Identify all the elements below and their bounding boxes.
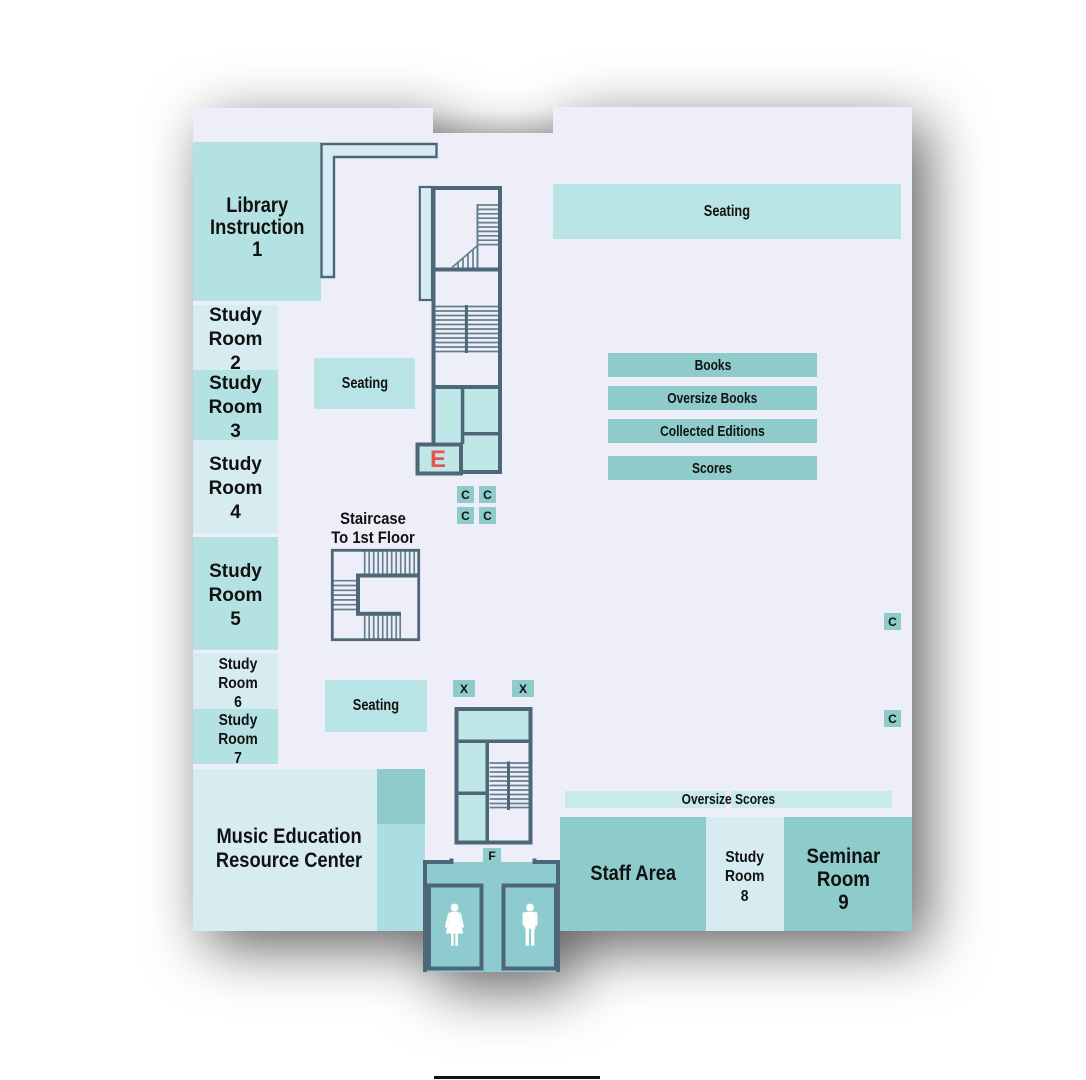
svg-text:E: E	[430, 446, 446, 473]
